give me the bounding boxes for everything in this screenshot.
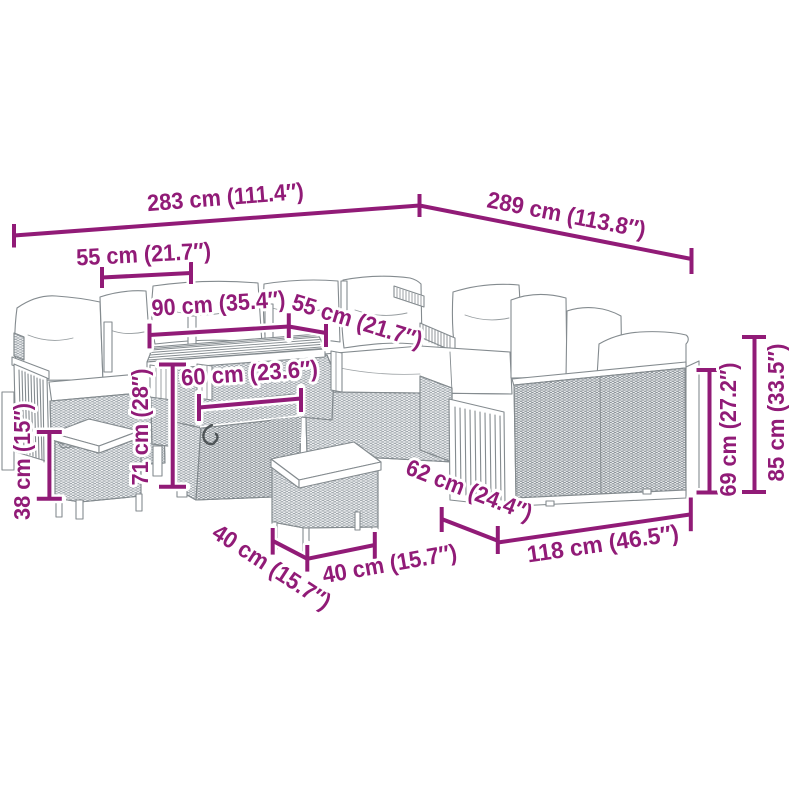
svg-text:85 cm (33.5″): 85 cm (33.5″) — [763, 344, 789, 482]
svg-text:69 cm (27.2″): 69 cm (27.2″) — [715, 363, 741, 497]
svg-text:38 cm (15″): 38 cm (15″) — [9, 403, 35, 520]
svg-text:71 cm (28″): 71 cm (28″) — [127, 369, 153, 486]
